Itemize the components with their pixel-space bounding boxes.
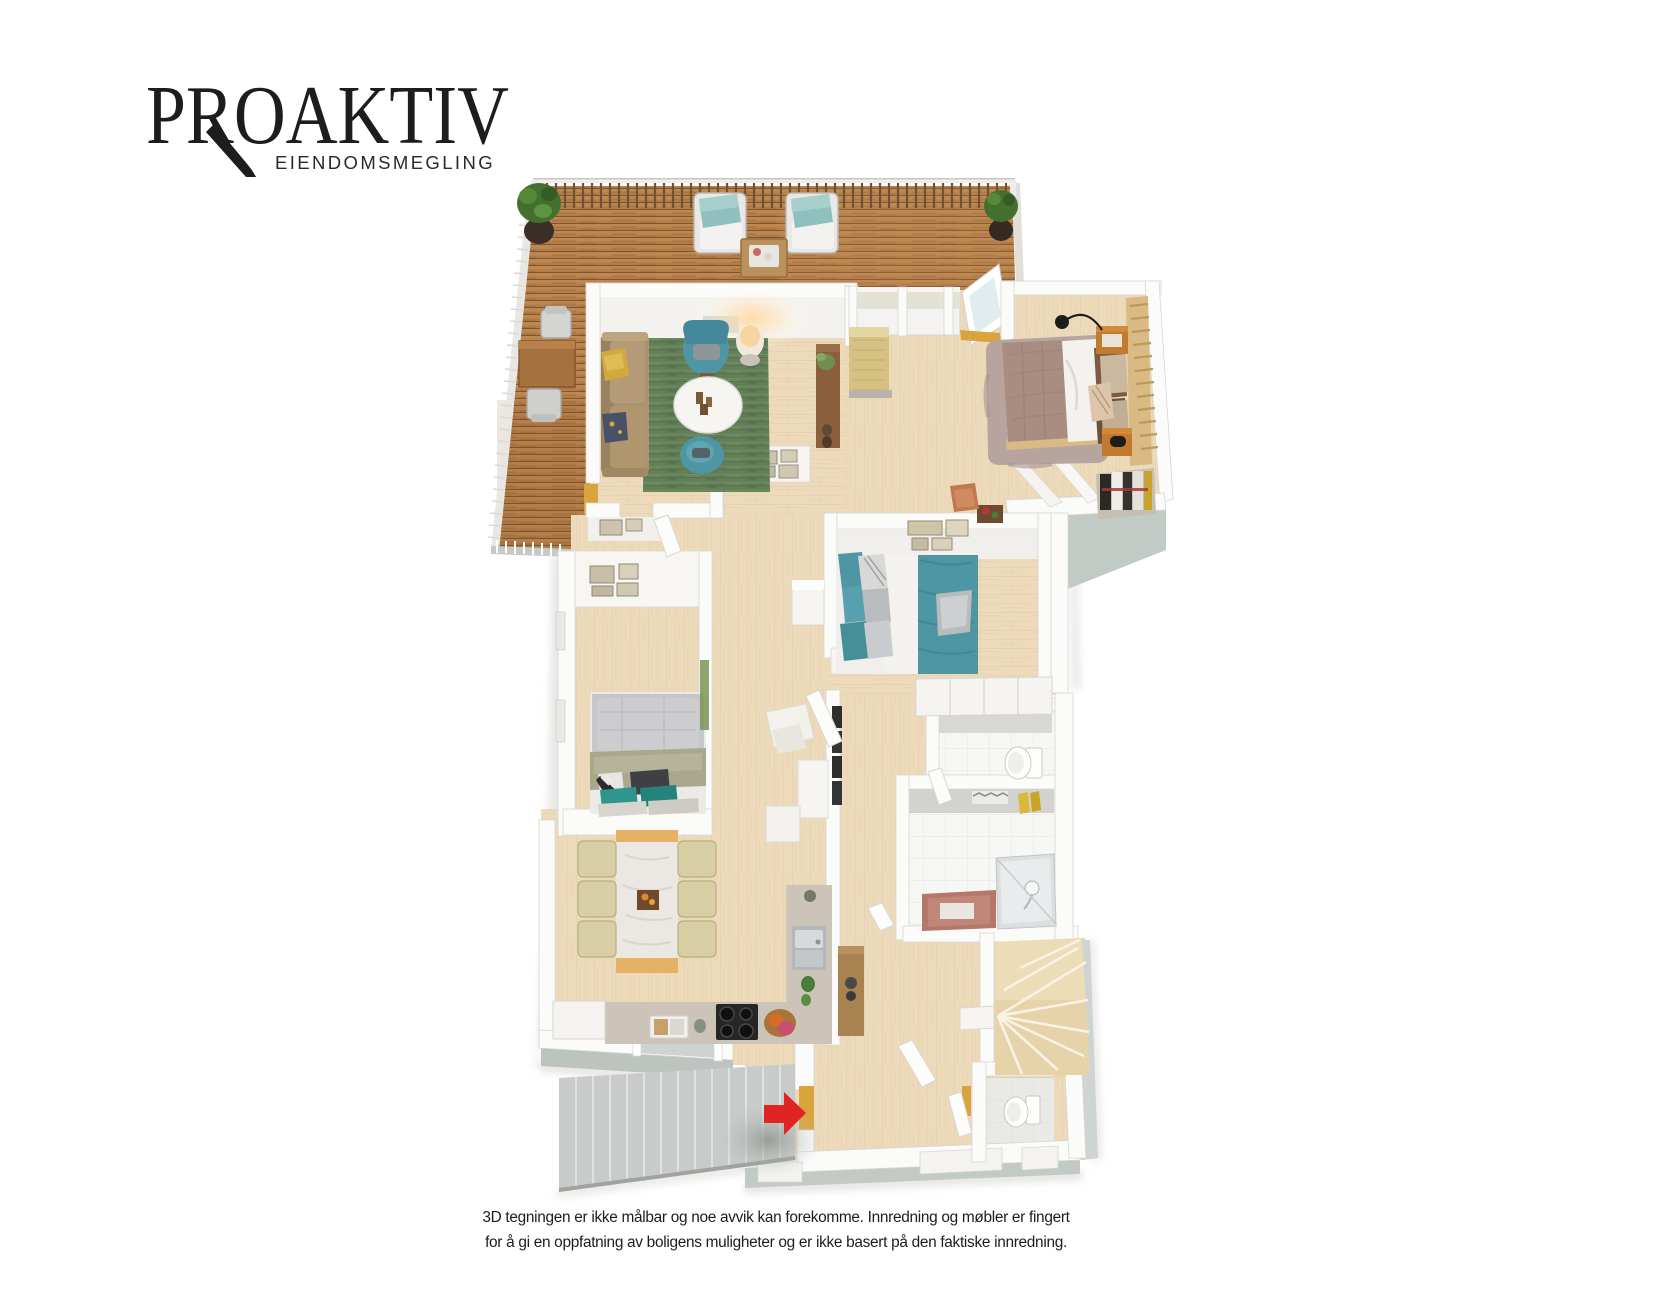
svg-text:3D tegningen er ikke målbar og: 3D tegningen er ikke målbar og noe avvik… <box>482 1209 1070 1226</box>
svg-text:EIENDOMSMEGLING: EIENDOMSMEGLING <box>275 152 495 173</box>
svg-text:for å gi en oppfatning av boli: for å gi en oppfatning av boligens mulig… <box>485 1234 1067 1251</box>
svg-text:PROAKTIV: PROAKTIV <box>146 68 509 162</box>
